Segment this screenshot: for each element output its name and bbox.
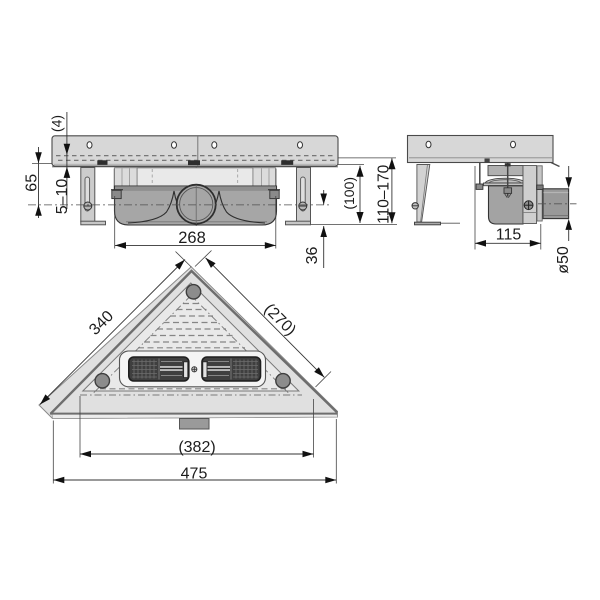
svg-text:268: 268: [178, 229, 206, 247]
svg-text:(382): (382): [178, 439, 215, 456]
svg-text:65: 65: [23, 174, 40, 192]
svg-text:(100): (100): [341, 177, 357, 210]
svg-text:(4): (4): [49, 115, 65, 132]
svg-text:110–170: 110–170: [375, 164, 392, 224]
svg-text:115: 115: [496, 227, 522, 244]
svg-text:5–10: 5–10: [54, 179, 71, 215]
svg-text:475: 475: [181, 466, 208, 483]
svg-text:ø50: ø50: [555, 246, 572, 274]
svg-text:36: 36: [304, 247, 321, 265]
